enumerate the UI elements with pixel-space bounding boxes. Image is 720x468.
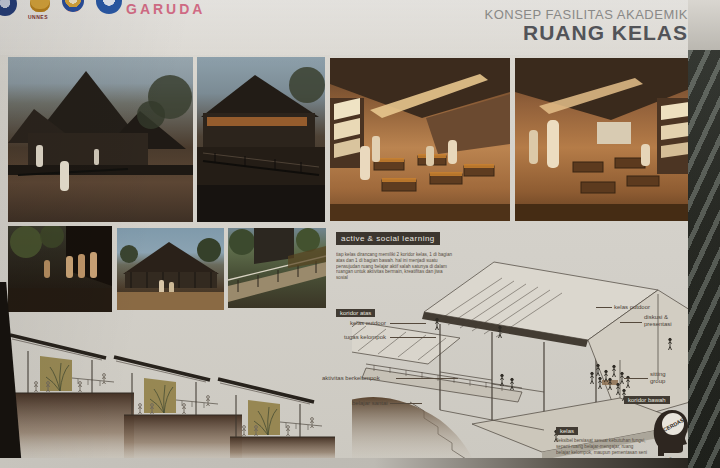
label-koridor-bawah: koridor bawah [624, 396, 670, 404]
leader-line [396, 378, 458, 379]
cerdas-head-icon: CERDAS [650, 408, 690, 456]
label-sitting-group: sitting group [650, 371, 676, 385]
school-logo-icon [62, 0, 84, 12]
leader-line [390, 323, 426, 324]
leader-line [624, 378, 648, 379]
label-kelas-outdoor-right: kelas outdoor [614, 304, 650, 311]
photo-of-presentation-board: UNNES JAYA UNGGUL GARUDA KONSEP FASILITA… [0, 0, 720, 468]
photo-corridor-render [8, 226, 112, 312]
section-drawing [2, 305, 337, 465]
unnes-logo-label: UNNES [28, 14, 48, 20]
photo-walkway-render [228, 228, 326, 308]
leader-line [596, 307, 612, 308]
label-koridor-atas: koridor atas [336, 309, 375, 317]
label-kelas-outdoor-left: kelas outdoor [350, 320, 386, 327]
kelas-section-tag: kelas [556, 427, 578, 435]
photo-roof-render [117, 228, 224, 310]
logo-row: UNNES JAYA UNGGUL GARUDA [0, 0, 200, 34]
label-tugas-kelompok: tugas kelompok [344, 334, 386, 341]
photo-exterior-render-1 [8, 57, 193, 222]
floor-strip [0, 458, 720, 468]
photo-classroom-interior-2 [515, 58, 692, 221]
leader-line [390, 337, 436, 338]
unnes-logo-icon [30, 0, 50, 12]
title-line-1: KONSEP FASILITAS AKADEMIK [388, 7, 688, 22]
label-belajar-santai: belajar santai [352, 400, 388, 407]
learning-section-tag: active & social learning [336, 232, 440, 245]
photo-exterior-render-2 [197, 57, 325, 222]
glass-reflection-edge [688, 50, 720, 468]
leader-line [390, 403, 422, 404]
leader-line [620, 322, 642, 323]
label-diskusi-presentasi: diskusi & presentasi [644, 314, 680, 328]
university-logo-icon [0, 0, 17, 16]
photo-classroom-interior-1 [330, 58, 510, 221]
garuda-logo-label: GARUDA [126, 1, 205, 17]
page-title: KONSEP FASILITAS AKADEMIK RUANG KELAS [388, 7, 688, 45]
axonometric-diagram [352, 252, 692, 462]
board-right-top-edge [688, 0, 720, 52]
kelas-section-body: fleksibel bersiasat sesuai kebutuhan fun… [556, 438, 648, 455]
institution-logo-icon [96, 0, 122, 14]
title-line-2: RUANG KELAS [388, 21, 688, 45]
